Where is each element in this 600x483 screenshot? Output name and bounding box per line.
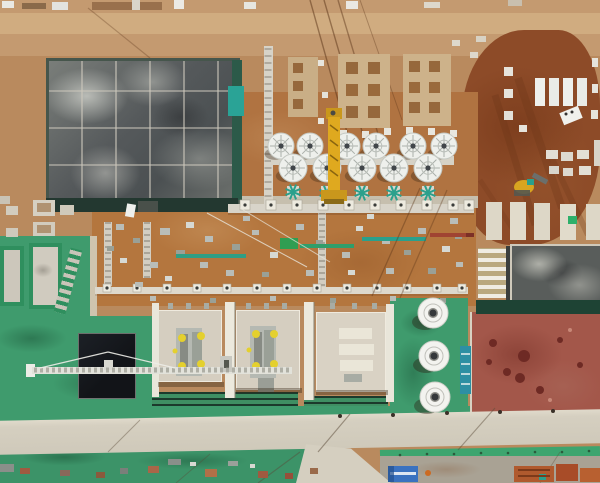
fence-post-item	[453, 453, 456, 456]
foundation-pad-item	[368, 84, 380, 96]
bay-equipment-item	[339, 344, 374, 355]
left-pad-item	[37, 225, 51, 233]
radiator-disc-row1-hub	[344, 143, 349, 148]
tank-sign	[460, 346, 471, 394]
bottom-structure-item	[556, 464, 578, 481]
white-panel-item	[592, 58, 598, 67]
fence-post-item	[426, 453, 429, 456]
white-panel-item	[563, 78, 573, 106]
right-concrete-pad-item	[486, 202, 502, 240]
foundation-pad-item	[368, 106, 380, 118]
switchyard-equipment-item	[133, 238, 140, 243]
foundation-pad-item	[452, 40, 460, 46]
white-panel-item	[519, 125, 527, 132]
lattice-boom-item	[224, 360, 229, 368]
switchyard-equipment-item	[186, 222, 194, 228]
busbar-pad-row1-dot	[399, 203, 402, 206]
switchyard-equipment-item	[150, 296, 156, 301]
white-panel-item	[592, 84, 598, 93]
fan-star-hub	[291, 190, 295, 194]
fence-post	[399, 450, 591, 457]
bottom-structure-item	[0, 464, 14, 472]
bay-equipment-item	[339, 328, 372, 339]
bottom-structure-item	[20, 468, 30, 474]
excavator-parts-item	[532, 173, 548, 185]
foundation-pad-item	[409, 82, 420, 93]
foundation-pad-item	[384, 128, 391, 135]
busbar-pad-row2-dot	[315, 286, 318, 289]
entrance-vehicle-item	[125, 203, 136, 217]
right-concrete-pad-item	[586, 204, 600, 240]
switchyard-equipment-item	[243, 216, 250, 221]
road-shadow-item	[318, 414, 350, 452]
white-panel-item	[561, 152, 573, 161]
foundation-pad-item	[476, 36, 486, 42]
yellow-marker-item	[247, 348, 252, 353]
bottom-structure-item	[120, 468, 128, 474]
road-shadow-item	[108, 420, 140, 452]
fence-post-item	[399, 454, 402, 457]
switchyard-equipment-item	[456, 262, 463, 267]
fence-post-item	[588, 450, 591, 453]
entrance-vehicle	[125, 201, 158, 218]
foundation-pad-item	[346, 84, 358, 96]
top-structures-item	[424, 2, 440, 8]
switchyard-equipment-item	[200, 262, 208, 268]
firewall-item	[386, 304, 394, 402]
gravel-blotch	[486, 328, 583, 402]
bay-equipment-item	[282, 303, 287, 309]
foundation-pad-item	[428, 128, 435, 135]
foundation-pad-item	[429, 102, 440, 113]
bay-equipment-item	[344, 374, 362, 382]
busbar-pad-row1-dot	[347, 203, 350, 206]
switchyard-equipment-item	[160, 228, 170, 235]
white-panel-item	[549, 78, 559, 106]
bus-duct-segment-item	[176, 254, 246, 258]
excavator-parts-item	[527, 179, 534, 185]
gravel-blotch-item	[486, 359, 492, 365]
bottom-structure-item	[580, 468, 600, 482]
powerline-shadow-item	[88, 8, 150, 58]
switchyard-equipment-item	[270, 252, 278, 258]
yellow-marker-item	[178, 334, 186, 342]
excavator-parts-item	[514, 190, 530, 196]
yellow-marker-item	[270, 360, 278, 368]
white-panel-item	[577, 150, 589, 159]
bottom-structure-item	[250, 464, 255, 468]
bay-equipment-item	[204, 303, 209, 309]
switchyard-equipment-item	[210, 298, 216, 303]
switchyard-equipment-item	[442, 246, 450, 252]
road-pole-item	[551, 409, 555, 413]
white-panel-item	[591, 110, 598, 119]
crane-body-item	[324, 199, 344, 204]
bottom-structure-item	[148, 466, 159, 473]
white-panel-item	[559, 106, 582, 126]
bus-duct-segment-item	[280, 238, 298, 249]
bus-duct-segment-item	[362, 237, 426, 241]
storage-tank-hatch	[432, 394, 439, 401]
bottom-structure-item	[96, 472, 105, 478]
switchyard-equipment-item	[165, 276, 172, 281]
top-structures-item	[508, 0, 522, 6]
gravel-blotch-item	[536, 386, 544, 394]
top-structures-item	[174, 0, 184, 9]
switchyard-equipment-item	[330, 298, 336, 303]
crane-cab-dot	[331, 111, 336, 116]
road-shadow-item	[458, 408, 495, 450]
bay-equipment-item	[352, 303, 357, 309]
left-pad-item	[60, 205, 74, 215]
bus-duct-segment-item	[430, 233, 466, 237]
busbar-pad-row1-dot	[373, 203, 376, 206]
bay-equipment-item	[158, 382, 224, 387]
switchyard-equipment-item	[150, 262, 158, 268]
switchyard-equipment-item	[348, 270, 355, 275]
foundation-pad-item	[429, 82, 440, 93]
radiator-disc-row1-hub	[410, 143, 415, 148]
top-structures-item	[346, 1, 358, 9]
tank-sign-item	[460, 346, 471, 394]
foundation-pad-item	[293, 99, 303, 109]
yellow-marker-item	[173, 349, 178, 354]
left-pad-item	[6, 206, 18, 215]
bay-equipment-item	[372, 303, 377, 309]
top-structures-item	[244, 2, 256, 9]
busbar-pad-row1-dot	[467, 203, 470, 206]
fence-post-item	[561, 451, 564, 454]
busbar-pad-row2-dot	[225, 286, 228, 289]
storage-tank-hatch	[430, 310, 437, 317]
busbar-pad-row2-dot	[195, 286, 198, 289]
foundation-pad-item	[293, 63, 303, 73]
detail-stamps-layer	[0, 0, 600, 483]
aerial-photo-construction-site	[0, 0, 600, 483]
white-panel-item	[546, 150, 558, 159]
left-pad-item	[6, 228, 18, 237]
switchyard-equipment-item	[107, 246, 114, 251]
foundation-pad-item	[293, 81, 303, 91]
white-panel-item	[504, 89, 513, 98]
white-panel-item	[594, 140, 600, 166]
radiator-disc-row1-hub	[307, 143, 312, 148]
busbar-pad-row2-dot	[165, 286, 168, 289]
bottom-structure-item	[514, 466, 554, 482]
foundation-pad-item	[470, 52, 478, 58]
switchyard-equipment-item	[252, 230, 259, 235]
switchyard-equipment-item	[418, 228, 426, 234]
road-shadow-item	[258, 452, 300, 483]
bottom-dot-item	[425, 470, 431, 476]
yellow-marker-item	[197, 332, 205, 340]
bay-equipment-item	[316, 390, 388, 395]
switchyard-equipment-item	[135, 282, 143, 287]
yellow-marker-item	[270, 330, 278, 338]
bay-equipment	[158, 303, 388, 395]
switchyard-equipment-item	[450, 218, 458, 224]
foundation-pad-item	[368, 62, 380, 74]
storage-tank	[412, 298, 450, 414]
radiator-disc-row1-hub	[278, 143, 283, 148]
bus-duct-segment-item	[466, 233, 474, 237]
radiator-disc-row2-hub	[359, 165, 364, 170]
switchyard-equipment-item	[270, 296, 276, 301]
lattice-boom-truss-item	[108, 352, 175, 368]
white-panel-item	[504, 67, 513, 76]
left-pad	[0, 196, 74, 237]
switchyard-equipment-item	[120, 258, 127, 263]
busbar-pad-row2-dot	[435, 286, 438, 289]
bottom-structure-item	[190, 462, 196, 466]
panel-dots-item	[565, 113, 568, 116]
bay-equipment-item	[330, 303, 335, 309]
busbar-pad-row2-dot	[255, 286, 258, 289]
radiator-disc-row2-hub	[391, 165, 396, 170]
road-pole-item	[498, 410, 502, 414]
road-pole-item	[391, 413, 395, 417]
radiator-disc-row1-hub	[373, 143, 378, 148]
bottom-structure-item	[285, 473, 293, 479]
bottom-structure-item	[258, 471, 268, 478]
foundation-pad-item	[346, 62, 358, 74]
firewall-item	[304, 302, 314, 400]
switchyard-equipment-item	[262, 272, 269, 277]
switchyard-equipment-item	[205, 236, 213, 242]
switchyard-equipment-item	[356, 226, 363, 231]
foundation-pad	[288, 36, 486, 138]
fan-star-hub	[360, 191, 364, 195]
switchyard-equipment-item	[404, 250, 411, 255]
firewall-item	[225, 302, 235, 398]
white-panel-item	[549, 166, 559, 174]
switchyard-equipment-item	[306, 270, 314, 276]
foundation-pad-item	[346, 106, 358, 118]
white-panel-item	[563, 168, 573, 176]
radiator-disc-row2-hub	[425, 165, 430, 170]
storage-tank-hatch	[431, 353, 438, 360]
busbar-pad-row2-dot	[345, 286, 348, 289]
top-structures-item	[92, 2, 162, 10]
switchyard-equipment-item	[428, 268, 436, 274]
fan-star-hub	[426, 191, 430, 195]
busbar-pad-row1-dot	[269, 203, 272, 206]
lattice-boom-truss-item	[40, 352, 108, 368]
switchyard-equipment-item	[342, 252, 350, 258]
white-panel-item	[504, 111, 513, 120]
foundation-pad-item	[409, 102, 420, 113]
bay-equipment-item	[168, 303, 173, 309]
yellow-marker-item	[252, 330, 260, 338]
right-concrete-pad-item	[534, 203, 550, 240]
gravel-blotch-item	[548, 398, 552, 402]
gravel-blotch-item	[577, 362, 583, 368]
switchyard-equipment-item	[226, 270, 234, 276]
busbar-pad-row2-dot	[460, 286, 463, 289]
gravel-blotch-item	[503, 368, 511, 376]
switchyard-equipment-item	[367, 214, 374, 219]
foundation-pad-item	[409, 61, 420, 72]
white-panel	[504, 58, 600, 176]
panel-dots-item	[571, 111, 574, 114]
gravel-blotch-item	[557, 337, 563, 343]
white-panel-item	[579, 166, 591, 175]
radiator-disc-row2-hub	[290, 165, 295, 170]
bay-equipment-item	[264, 303, 269, 309]
foundation-pad-item	[318, 60, 324, 66]
switchyard-equipment-item	[116, 224, 124, 230]
foundation-pad-item	[429, 61, 440, 72]
road-pole-item	[445, 411, 449, 415]
busbar-pad-row2-dot	[405, 286, 408, 289]
top-structures-item	[22, 3, 46, 9]
bay-equipment-item	[246, 303, 251, 309]
road-shadow-item	[176, 454, 210, 483]
top-structures	[2, 0, 522, 10]
firewall-item	[152, 303, 159, 397]
crane-cab-dot-item	[331, 111, 336, 116]
busbar-pad-row2-dot	[285, 286, 288, 289]
switchyard-equipment-item	[386, 268, 394, 274]
white-panel-item	[535, 78, 545, 106]
top-structures-item	[52, 2, 68, 10]
foundation-pad-item	[338, 54, 390, 128]
bottom-structure-item	[205, 469, 217, 477]
cable-tray-vertical-item	[143, 222, 151, 278]
road-pole-item	[338, 414, 342, 418]
fence-post-item	[480, 452, 483, 455]
road-shadow	[108, 408, 560, 483]
foundation-pad-item	[318, 118, 324, 124]
entrance-vehicle-item	[138, 201, 158, 212]
switchyard-equipment-item	[296, 224, 304, 230]
busbar-pad-row1-dot	[451, 203, 454, 206]
busbar-pad-row2-dot	[105, 286, 108, 289]
left-pad-item	[37, 203, 51, 212]
radiator-disc-row1-hub	[441, 143, 446, 148]
top-structures-item	[132, 0, 140, 10]
bottom-structure-item	[60, 470, 70, 476]
white-panel-item	[577, 78, 587, 106]
gravel-blotch-item	[568, 328, 572, 332]
bottom-dot	[425, 470, 431, 476]
gravel-blotch-item	[515, 373, 525, 383]
bay-equipment-item	[186, 303, 191, 309]
yellow-marker-item	[197, 360, 205, 368]
bottom-structure	[0, 459, 600, 482]
busbar-pad-row1-dot	[295, 203, 298, 206]
bay-equipment-item	[340, 360, 373, 371]
fence-post-item	[534, 451, 537, 454]
bottom-structure-item	[168, 459, 181, 465]
fence-post-item	[507, 452, 510, 455]
busbar-beam-item	[95, 287, 468, 294]
right-concrete-pad-item	[510, 202, 526, 240]
road-pole	[338, 409, 555, 418]
bottom-structure-item	[310, 468, 318, 474]
busbar-pad-row1-dot	[425, 203, 428, 206]
gravel-blotch-item	[518, 350, 530, 362]
bay-equipment-item	[236, 388, 302, 393]
bottom-structure-item	[228, 461, 238, 466]
fan-star	[286, 185, 436, 201]
fan-star-hub	[392, 191, 396, 195]
right-concrete-pad-item	[568, 216, 577, 224]
gravel-blotch-item	[489, 339, 497, 347]
left-pad-item	[0, 196, 10, 204]
bottom-structure-item	[388, 466, 394, 482]
foundation-pad-item	[322, 92, 328, 98]
bus-duct-segment-item	[300, 244, 354, 248]
switchyard-equipment-item	[232, 244, 240, 250]
switchyard-equipment-item	[390, 296, 396, 301]
top-structures-item	[2, 1, 14, 8]
busbar-pad-row1-dot	[243, 203, 246, 206]
